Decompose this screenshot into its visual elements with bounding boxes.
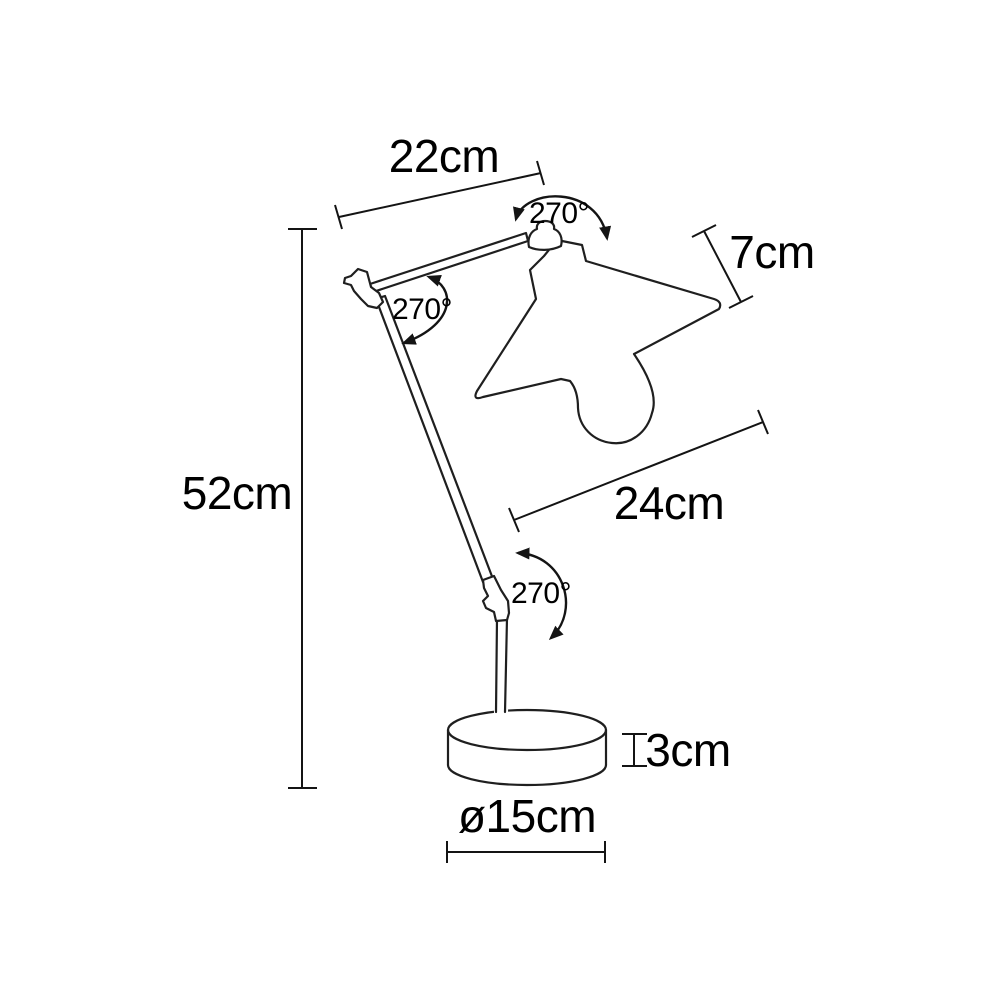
label-lower-arm-length: 24cm bbox=[614, 480, 724, 526]
lamp-dimension-drawing bbox=[0, 0, 1000, 1000]
lower-arm bbox=[376, 296, 493, 582]
dim-line-diameter-15cm bbox=[447, 841, 605, 863]
dim-line-3cm bbox=[622, 734, 647, 766]
lamp-shade bbox=[475, 240, 720, 443]
diagram-canvas: 22cm 270° 7cm 270° 52cm 24cm 270° 3cm ø1… bbox=[0, 0, 1000, 1000]
label-base-diameter: ø15cm bbox=[458, 793, 596, 839]
label-total-height: 52cm bbox=[182, 470, 292, 516]
knee-joint bbox=[483, 576, 509, 621]
label-base-height: 3cm bbox=[645, 727, 730, 773]
label-elbow-rotation: 270° bbox=[392, 295, 452, 325]
upper-arm bbox=[370, 233, 528, 292]
label-base-joint-rotation: 270° bbox=[511, 579, 571, 609]
label-upper-arm-length: 22cm bbox=[389, 133, 499, 179]
base-bottom-edge bbox=[448, 765, 606, 785]
label-shade-height: 7cm bbox=[729, 229, 814, 275]
stem-left-line bbox=[496, 618, 497, 712]
base-top-ellipse bbox=[448, 710, 606, 750]
dim-line-52cm bbox=[288, 229, 317, 788]
label-head-rotation: 270° bbox=[529, 199, 589, 229]
